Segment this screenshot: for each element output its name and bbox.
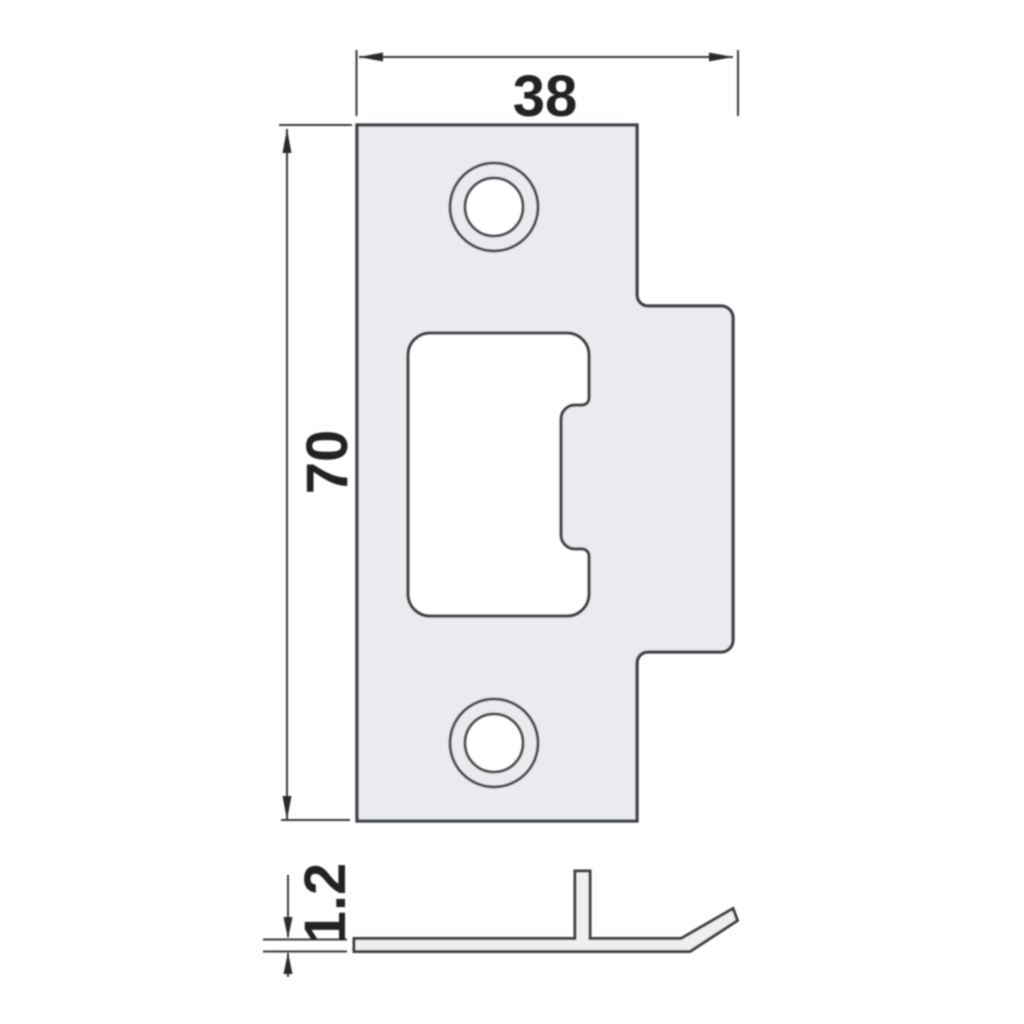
svg-text:70: 70 bbox=[295, 430, 360, 495]
svg-text:38: 38 bbox=[513, 64, 578, 129]
svg-text:1.2: 1.2 bbox=[293, 863, 358, 944]
